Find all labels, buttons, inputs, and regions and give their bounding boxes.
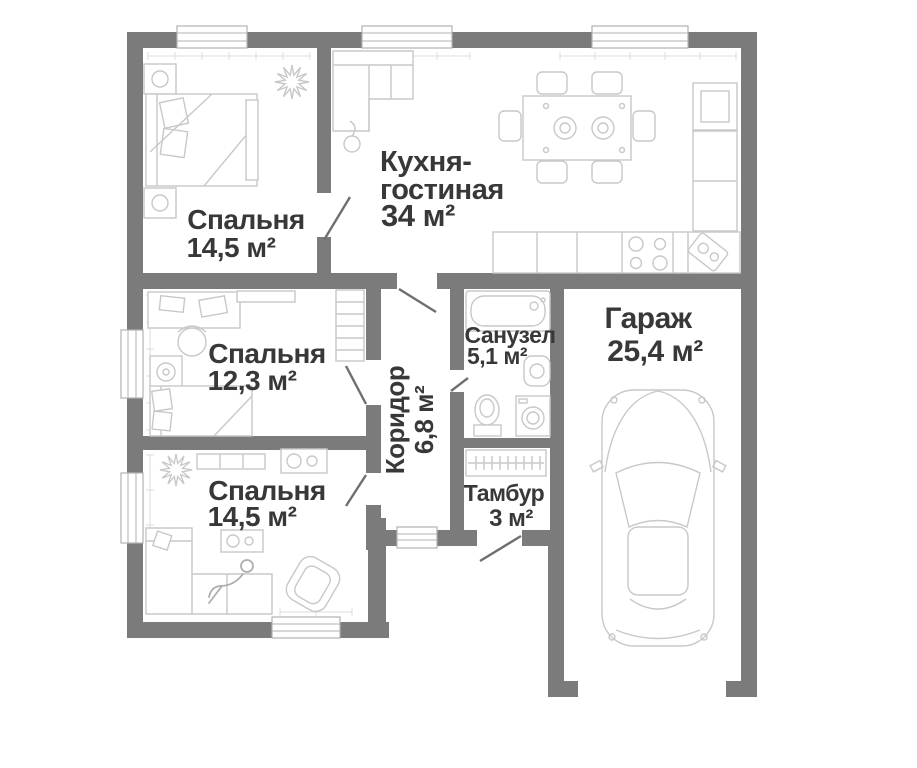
toilet-icon [474,395,501,436]
floor-plan-svg: Спальня 14,5 м² Кухня- гостиная 34 м² Сп… [0,0,917,768]
bedroom1-label: Спальня [187,204,304,235]
mirror-icon [590,461,603,472]
corridor-wall-left-1 [366,289,381,360]
window-top-kitchen-1 [362,26,452,48]
chair-icon [592,72,622,94]
vestibule-area: 3 м² [489,505,533,532]
window-top-bedroom1 [177,26,247,48]
mirror-icon [713,461,726,472]
chair-icon [499,111,521,141]
door-entrance [480,536,521,561]
speaker-icon [150,356,182,388]
washing-machine-icon [516,396,550,436]
sofa-icon [333,51,413,131]
door-bedroom3 [346,475,366,506]
bathroom-area: 5,1 м² [467,343,528,369]
door-bedroom2 [346,366,366,404]
tall-cabinet-icon [693,83,737,130]
interior-wall-mid-right [437,273,741,289]
chair-icon [537,161,567,183]
desk-chair-icon [178,328,206,356]
window-entrance [397,527,437,548]
bedroom1-furniture [144,64,309,218]
bathroom-wall-bottom [450,438,564,448]
vestibule-label: Тамбур [464,480,545,506]
bedroom2-area: 12,3 м² [208,365,297,396]
bedroom1-kitchen-divider-stub [317,237,331,273]
tv-console-icon [197,454,265,469]
garage-left-foot [548,681,578,697]
window-left-bedroom3 [121,473,143,543]
dining-table-icon [523,96,631,160]
entrance-wall-right [522,530,564,546]
plant-icon [275,65,309,99]
exterior-wall-bottom-left [127,622,389,638]
window-top-kitchen-2 [592,26,688,48]
laptop-icon [199,296,228,317]
dresser-icon [281,449,327,473]
chair-icon [592,161,622,183]
nightstand-icon [144,188,176,218]
garage-wall-left [548,530,564,697]
floor-lamp-icon [344,136,360,152]
bedroom1-kitchen-divider [317,48,331,193]
corridor-label: Коридор [380,366,410,474]
window-left-bedroom2 [121,330,143,398]
corridor-wall-left-2 [366,405,381,473]
interior-wall-mid-left [127,273,397,289]
bench-icon [246,100,258,180]
bathroom-wall-left-2 [450,392,464,530]
garage-right-foot [726,681,757,697]
pillow-icon [152,411,172,431]
bathroom-wall-left-1 [450,289,464,370]
bedroom3-area: 14,5 м² [208,501,297,532]
door-bathroom [451,378,468,391]
window-bottom-bedroom3 [272,617,340,638]
chair-icon [633,111,655,141]
garage-car [590,390,726,646]
washbasin-icon [524,356,550,386]
pillow-icon [160,98,189,128]
armchair-icon [282,552,344,616]
kitchen-area: 34 м² [381,198,455,233]
garage-label: Гараж [604,302,692,335]
bedroom1-area: 14,5 м² [187,232,276,263]
nightstand-icon [144,64,176,94]
door-kitchen-corridor [399,289,436,312]
room-labels: Спальня 14,5 м² Кухня- гостиная 34 м² Сп… [187,146,704,532]
floor-plan-page: Спальня 14,5 м² Кухня- гостиная 34 м² Сп… [0,0,917,768]
door-bedroom1 [324,197,350,240]
tv-shelf-icon [237,291,295,302]
pillow-icon [160,128,187,157]
bedroom2-bedroom3-separator [143,436,366,450]
plant-icon [160,454,192,486]
exterior-wall-right [741,32,757,697]
vestibule-closet [466,450,546,476]
garage-area: 25,4 м² [607,335,703,368]
corridor-area: 6,8 м² [409,385,439,454]
chair-icon [537,72,567,94]
pillow-icon [152,389,173,411]
car-icon [590,390,726,646]
